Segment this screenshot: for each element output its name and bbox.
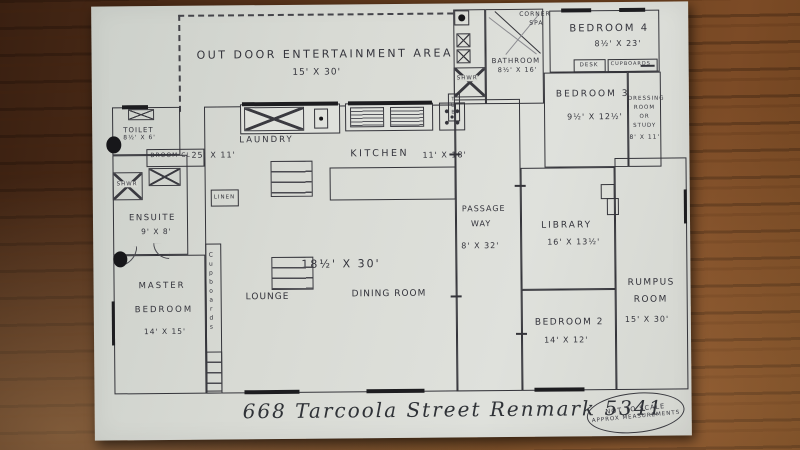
door-tick <box>451 295 462 297</box>
corner-spa-label-2: Spa <box>529 21 543 28</box>
shower-left-label: SHWR <box>117 181 138 187</box>
laundry-window-icon <box>314 109 328 129</box>
outdoor-area-label: Out Door Entertainment Area <box>196 48 436 63</box>
floor-plan-paper: Out Door Entertainment Area 15' x 30' 18… <box>91 1 692 440</box>
kitchen-label: Kitchen <box>350 149 409 160</box>
rumpus-dims: 15' x 30' <box>625 315 669 325</box>
wc-icon <box>454 10 469 25</box>
rumpus-label-1: Rumpus <box>628 278 675 289</box>
toilet-dims: 8½' x 6' <box>123 135 156 142</box>
ensuite-label: Ensuite <box>129 214 176 224</box>
master-cupboards-label: Cupboards <box>207 252 215 333</box>
fireplace-step <box>601 184 615 199</box>
bedroom2-label: Bedroom 2 <box>535 317 604 328</box>
window <box>112 301 115 345</box>
wood-table: { "plan": { "address": "668 Tarcoola Str… <box>0 0 800 450</box>
paper-mark <box>106 136 121 153</box>
island-bench <box>330 166 456 200</box>
outdoor-area <box>178 12 454 111</box>
cistern-box <box>456 33 470 47</box>
bathroom-dims: 8½' x 16' <box>498 67 538 75</box>
laundry-trough <box>244 107 304 132</box>
shower-top-label: SHWR <box>457 75 478 81</box>
master-bedroom-label-2: Bedroom <box>135 306 193 316</box>
bedroom3-dims: 9½' x 12½' <box>567 112 623 122</box>
bedroom3-label: Bedroom 3 <box>556 89 630 100</box>
kitchen-sink-bowl <box>390 107 424 127</box>
bathroom-label: Bathroom <box>492 57 541 65</box>
paper-mark <box>113 251 127 267</box>
desk-label: Desk <box>580 62 599 68</box>
window <box>366 389 424 394</box>
corner-spa-label-1: Corner <box>519 12 551 19</box>
ensuite-room <box>112 155 188 256</box>
master-bedroom-dims: 14' x 15' <box>144 328 186 337</box>
dressing-dims: 8' x 11' <box>628 135 661 142</box>
bedroom4-label: Bedroom 4 <box>569 23 649 35</box>
dressing-label-2: Room <box>628 105 661 112</box>
library-label: Library <box>541 220 592 231</box>
bedroom2-dims: 14' x 12' <box>544 335 588 345</box>
linen-label: Linen <box>214 194 235 200</box>
bedroom4-dims: 8½' x 23' <box>594 39 641 49</box>
outdoor-area-dims: 15' x 30' <box>277 67 357 78</box>
shelf-unit <box>271 257 313 290</box>
tub-label: TUB <box>450 96 456 116</box>
kitchen-sink-bowl <box>350 107 384 127</box>
cupboards-arrow <box>641 65 655 67</box>
laundry-label: Laundry <box>239 136 294 146</box>
ensuite-dims: 9' x 8' <box>141 228 172 237</box>
cistern-box <box>457 49 471 63</box>
shelf-unit <box>270 161 312 197</box>
dressing-label-4: Study <box>628 123 661 130</box>
toilet-basin <box>128 109 154 120</box>
window <box>122 105 148 109</box>
rumpus-label-2: Room <box>634 295 668 306</box>
window <box>684 189 687 223</box>
window <box>242 101 338 106</box>
lounge-label: Lounge <box>246 292 290 303</box>
window <box>534 387 584 391</box>
window <box>619 8 645 12</box>
passage-label-1: Passage <box>462 204 506 214</box>
passage-dims: 8' x 32' <box>461 241 499 251</box>
master-bedroom-room <box>113 255 206 395</box>
dressing-label-3: or <box>628 114 661 121</box>
door-tick <box>449 153 460 155</box>
dining-room-label: Dining Room <box>352 289 427 300</box>
master-bedroom-label-1: Master <box>139 282 186 292</box>
lounge-dining-room <box>204 104 458 393</box>
window <box>561 8 591 12</box>
passage-label-2: Way <box>471 219 491 228</box>
rumpus-room <box>614 157 688 390</box>
dressing-label-1: Dressing <box>628 96 661 103</box>
library-dims: 16' x 13½' <box>547 237 600 247</box>
window <box>244 390 299 394</box>
window <box>348 101 432 106</box>
